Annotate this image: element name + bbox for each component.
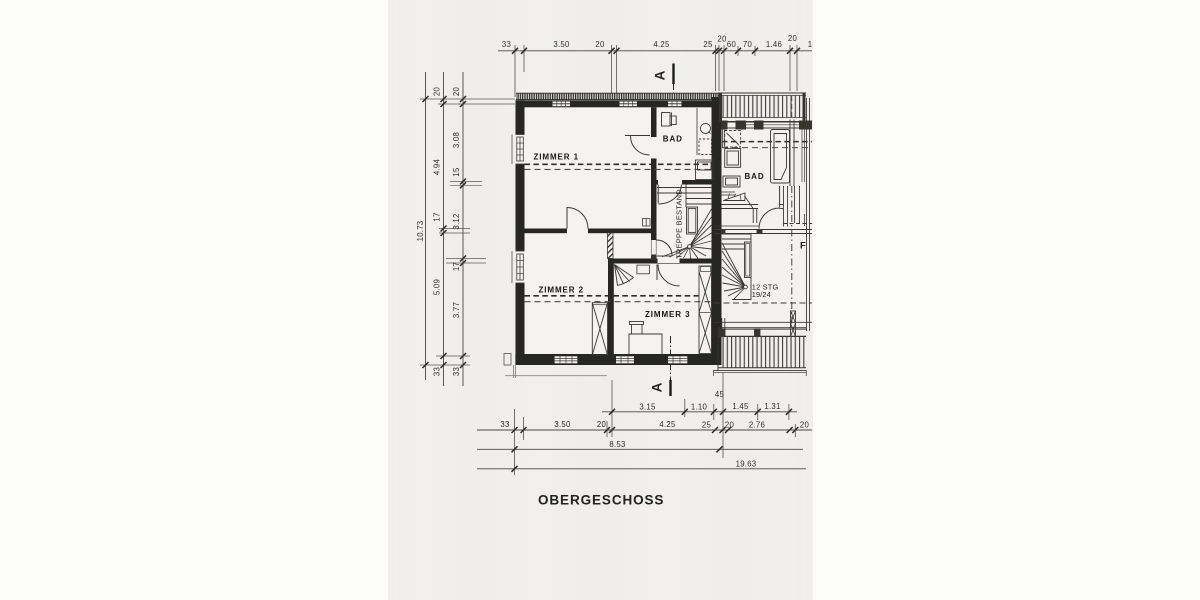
svg-text:45: 45 <box>715 390 725 399</box>
svg-text:ZIMMER 1: ZIMMER 1 <box>534 153 579 162</box>
svg-text:17: 17 <box>452 262 461 271</box>
svg-text:20: 20 <box>597 420 607 429</box>
svg-text:4.25: 4.25 <box>659 420 676 429</box>
svg-text:33: 33 <box>433 367 442 376</box>
svg-text:A: A <box>653 70 668 80</box>
svg-text:20: 20 <box>800 420 810 429</box>
svg-text:20: 20 <box>595 40 605 49</box>
svg-text:20: 20 <box>452 87 461 97</box>
svg-text:33: 33 <box>452 367 461 376</box>
svg-text:1: 1 <box>808 40 813 49</box>
svg-text:25: 25 <box>703 40 713 49</box>
svg-text:25: 25 <box>702 420 712 429</box>
svg-text:33: 33 <box>502 40 511 49</box>
svg-text:17: 17 <box>433 212 442 221</box>
svg-text:8.53: 8.53 <box>609 440 625 449</box>
svg-text:F: F <box>800 241 806 252</box>
svg-text:20: 20 <box>717 35 727 44</box>
svg-text:3.77: 3.77 <box>452 302 461 318</box>
svg-text:5.09: 5.09 <box>433 279 442 295</box>
svg-text:10.73: 10.73 <box>416 221 425 242</box>
svg-text:3.08: 3.08 <box>452 132 461 148</box>
svg-text:3.50: 3.50 <box>554 420 571 429</box>
svg-text:A: A <box>650 382 665 392</box>
svg-text:60: 60 <box>727 40 737 49</box>
svg-text:1.46: 1.46 <box>766 40 782 49</box>
svg-text:19/24: 19/24 <box>752 290 771 299</box>
svg-text:70: 70 <box>743 40 753 49</box>
svg-text:1.45: 1.45 <box>732 402 749 411</box>
svg-text:ZIMMER 3: ZIMMER 3 <box>645 310 690 319</box>
svg-text:1.10: 1.10 <box>691 402 708 411</box>
svg-text:BAD: BAD <box>745 172 765 181</box>
svg-text:4.94: 4.94 <box>433 159 442 176</box>
svg-text:33: 33 <box>500 420 509 429</box>
svg-text:3.12: 3.12 <box>452 213 461 229</box>
svg-text:ZIMMER 2: ZIMMER 2 <box>539 286 584 295</box>
svg-text:20: 20 <box>433 87 442 97</box>
svg-text:1.31: 1.31 <box>764 402 780 411</box>
svg-text:15: 15 <box>452 167 461 177</box>
svg-text:4.25: 4.25 <box>653 40 670 49</box>
svg-text:TREPPE BESTAND: TREPPE BESTAND <box>675 189 684 259</box>
svg-text:BAD: BAD <box>663 135 683 144</box>
svg-text:3.50: 3.50 <box>553 40 570 49</box>
svg-text:2.76: 2.76 <box>749 420 765 429</box>
svg-text:OBERGESCHOSS: OBERGESCHOSS <box>538 493 664 508</box>
svg-text:20: 20 <box>725 420 735 429</box>
svg-text:3.15: 3.15 <box>639 403 656 412</box>
svg-text:20: 20 <box>788 34 798 43</box>
svg-text:19.63: 19.63 <box>736 460 757 469</box>
